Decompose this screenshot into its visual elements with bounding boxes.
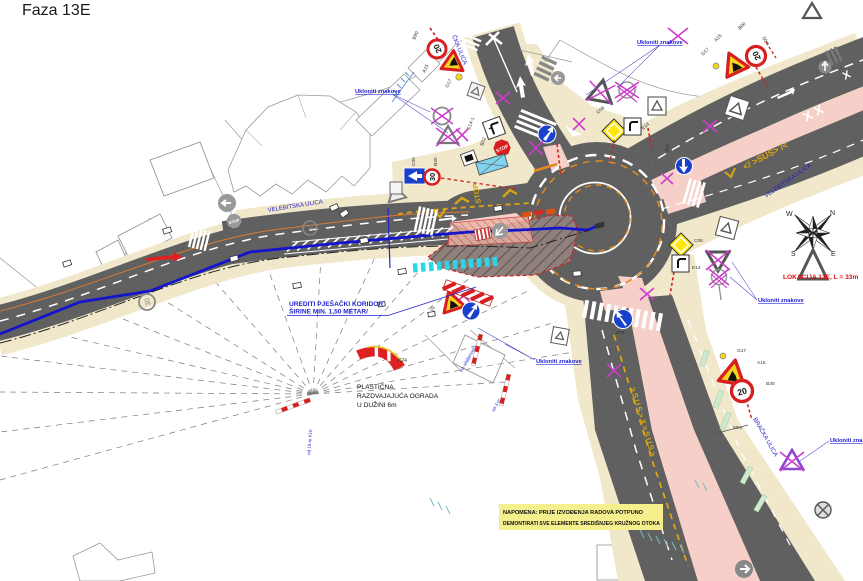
svg-text:B30: B30: [433, 157, 439, 166]
svg-text:DEMONTIRATI SVE ELEMENTE SREDI: DEMONTIRATI SVE ELEMENTE SREDIŠNJEG KRUŽ…: [503, 519, 661, 527]
svg-text:UREDITI PJEŠAČKI KORIDOR: UREDITI PJEŠAČKI KORIDOR: [289, 299, 383, 308]
svg-text:S: S: [791, 251, 796, 258]
svg-text:A15: A15: [757, 360, 766, 366]
svg-text:E: E: [831, 251, 836, 258]
svg-text:W: W: [786, 211, 793, 218]
svg-text:ŠIRINE MIN. 1,50 METAR/: ŠIRINE MIN. 1,50 METAR/: [289, 307, 368, 316]
svg-text:Ukloniti znakove: Ukloniti znakove: [355, 89, 402, 95]
svg-text:ZPB: ZPB: [616, 330, 625, 335]
svg-text:C05: C05: [411, 157, 417, 166]
svg-text:Ukloniti znakove: Ukloniti znakove: [758, 298, 805, 304]
svg-text:LOKACIJA 13E, L = 33m: LOKACIJA 13E, L = 33m: [783, 274, 858, 281]
svg-text:Ukloniti znakove: Ukloniti znakove: [536, 359, 583, 365]
svg-text:B30: B30: [766, 381, 775, 387]
svg-text:E14: E14: [692, 265, 701, 271]
svg-text:RAZDVAJAJUĆA OGRADA: RAZDVAJAJUĆA OGRADA: [357, 391, 439, 400]
svg-text:Ukloniti znakove: Ukloniti znakove: [637, 40, 684, 46]
svg-text:C06: C06: [694, 238, 703, 244]
svg-text:U DUŽINI 6m: U DUŽINI 6m: [357, 400, 397, 409]
svg-text:G17: G17: [737, 348, 746, 354]
svg-text:NAPOMENA: PRIJE IZVOĐENJA RADO: NAPOMENA: PRIJE IZVOĐENJA RADOVA POTPUNO: [503, 510, 643, 516]
svg-text:N: N: [830, 210, 835, 217]
svg-text:Faza 13E: Faza 13E: [22, 2, 90, 19]
svg-text:Ukloniti zna: Ukloniti zna: [830, 438, 863, 444]
svg-text:PLASTIČNA: PLASTIČNA: [357, 382, 394, 391]
svg-text:30: 30: [428, 173, 437, 181]
svg-text:K24: K24: [398, 358, 407, 364]
